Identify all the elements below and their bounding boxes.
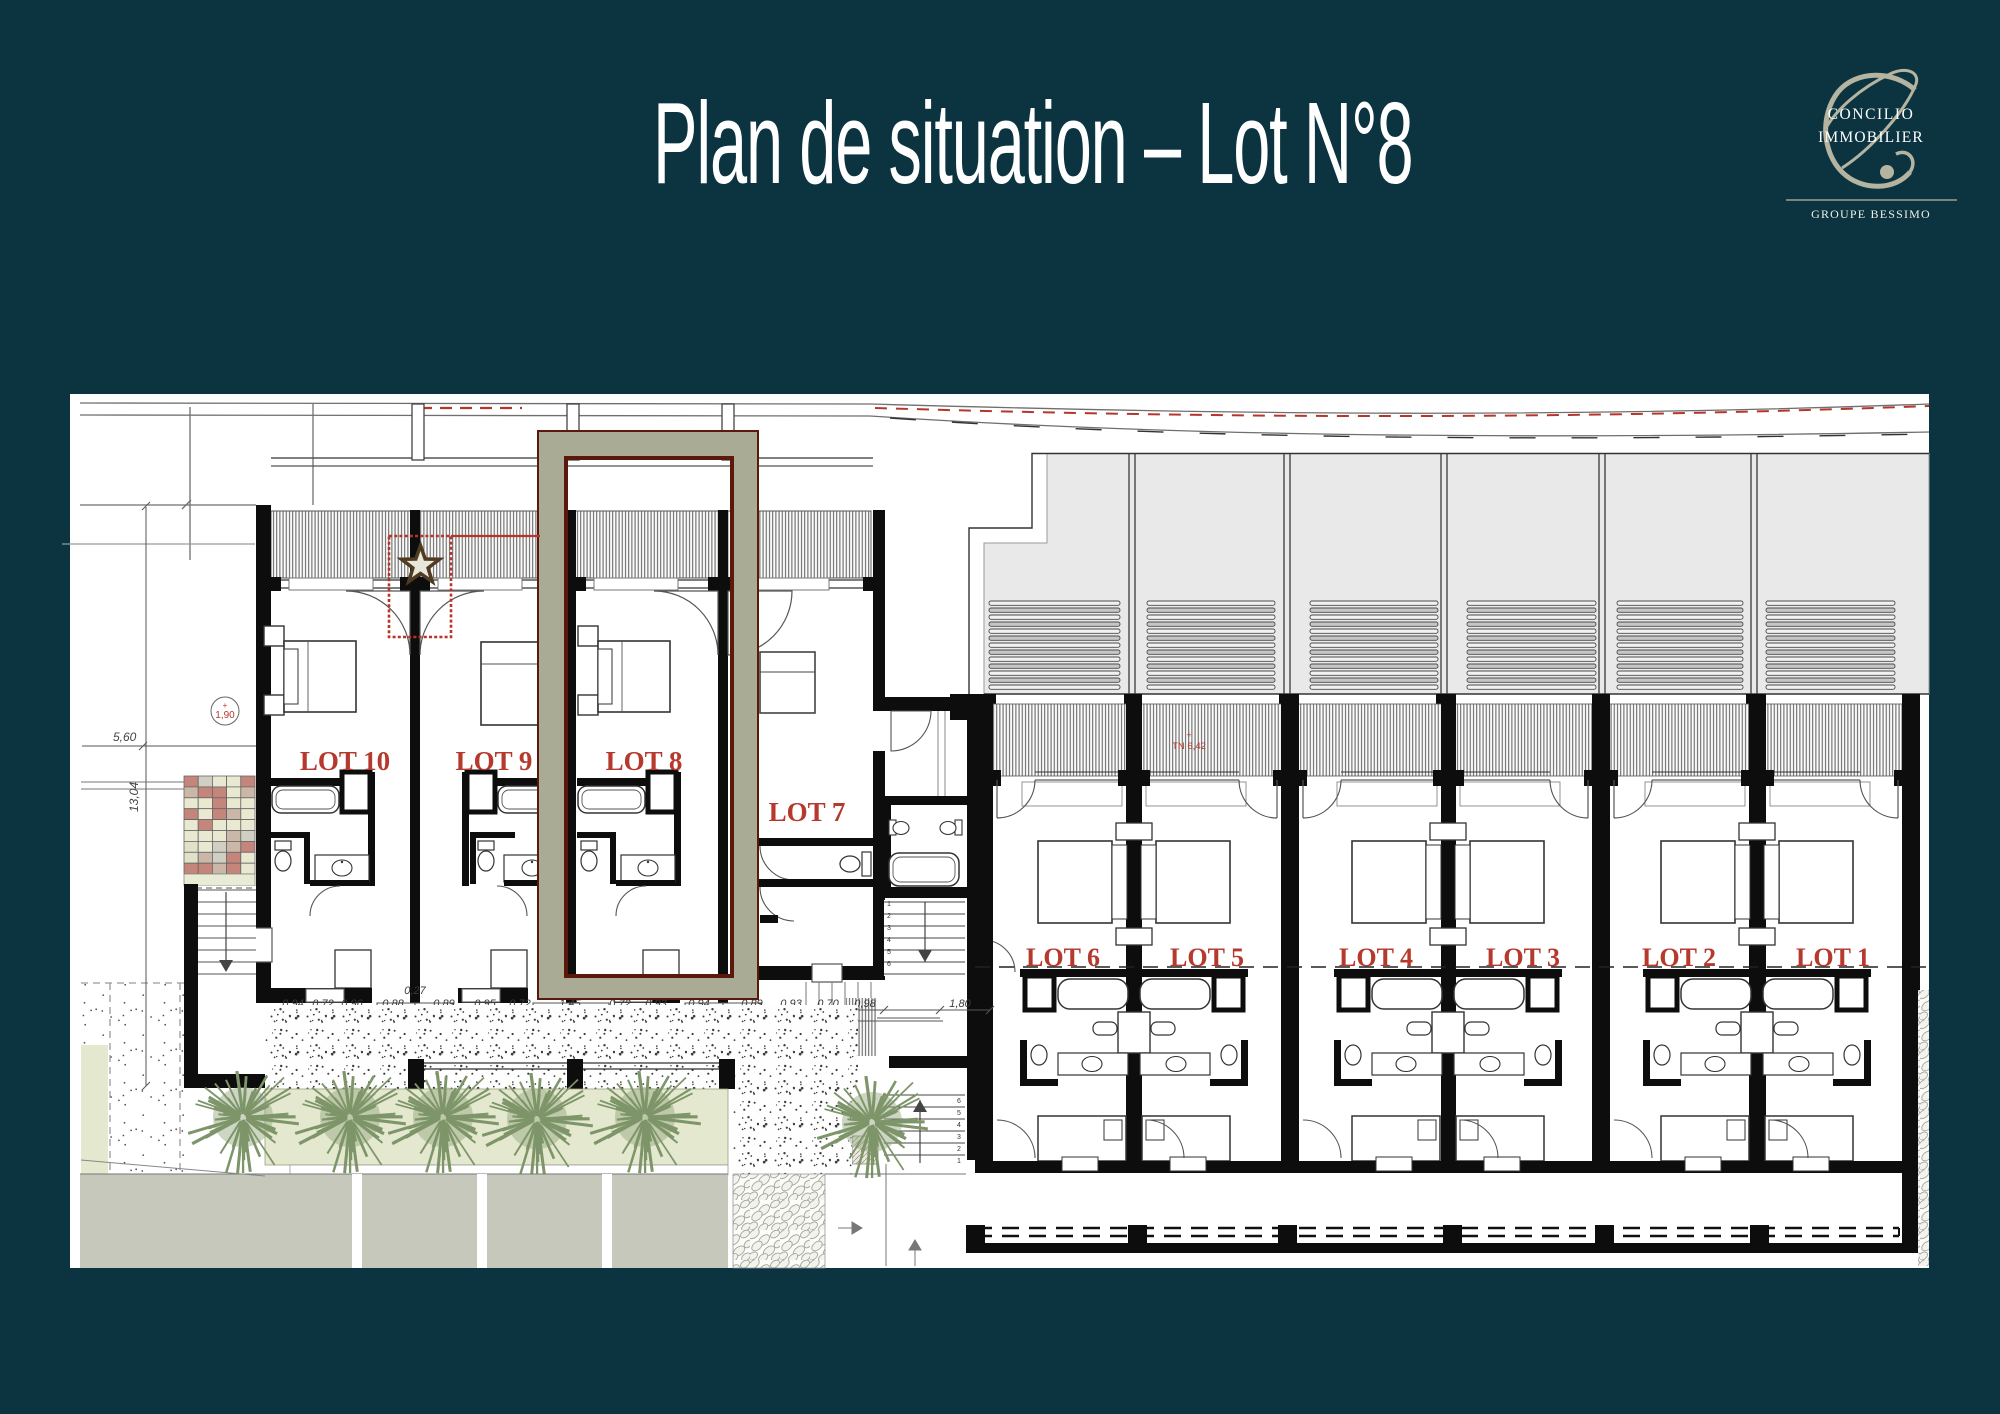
svg-text:4: 4	[957, 1122, 961, 1129]
svg-text:Plan de situation – Lot N°8: Plan de situation – Lot N°8	[653, 79, 1412, 209]
svg-text:1: 1	[957, 1158, 961, 1165]
svg-text:IMMOBILIER: IMMOBILIER	[1818, 129, 1924, 146]
svg-text:+: +	[223, 701, 228, 710]
svg-text:5,60: 5,60	[113, 730, 137, 744]
svg-text:6: 6	[887, 961, 891, 968]
svg-text:1,80: 1,80	[949, 998, 971, 1010]
svg-text:3: 3	[957, 1134, 961, 1141]
svg-text:1,90: 1,90	[215, 710, 235, 721]
svg-text:LOT 8: LOT 8	[606, 746, 683, 776]
svg-text:2: 2	[957, 1146, 961, 1153]
svg-text:4: 4	[887, 937, 891, 944]
svg-text:5: 5	[957, 1110, 961, 1117]
svg-text:CONCILIO: CONCILIO	[1828, 106, 1915, 123]
svg-text:+: +	[1186, 730, 1191, 740]
svg-text:LOT 3: LOT 3	[1486, 943, 1560, 972]
svg-text:LOT 4: LOT 4	[1339, 943, 1413, 972]
svg-text:2: 2	[887, 913, 891, 920]
svg-text:5: 5	[887, 949, 891, 956]
svg-text:LOT 10: LOT 10	[300, 746, 390, 776]
svg-text:GROUPE BESSIMO: GROUPE BESSIMO	[1811, 207, 1931, 221]
svg-text:6: 6	[957, 1098, 961, 1105]
svg-text:13,04: 13,04	[127, 782, 141, 812]
svg-text:LOT 1: LOT 1	[1796, 943, 1870, 972]
svg-text:1: 1	[887, 901, 891, 908]
svg-text:LOT 7: LOT 7	[769, 797, 846, 827]
svg-text:TN 6,42: TN 6,42	[1172, 741, 1206, 752]
svg-text:0,27: 0,27	[404, 985, 426, 997]
svg-text:3: 3	[887, 925, 891, 932]
svg-text:LOT 9: LOT 9	[456, 746, 533, 776]
